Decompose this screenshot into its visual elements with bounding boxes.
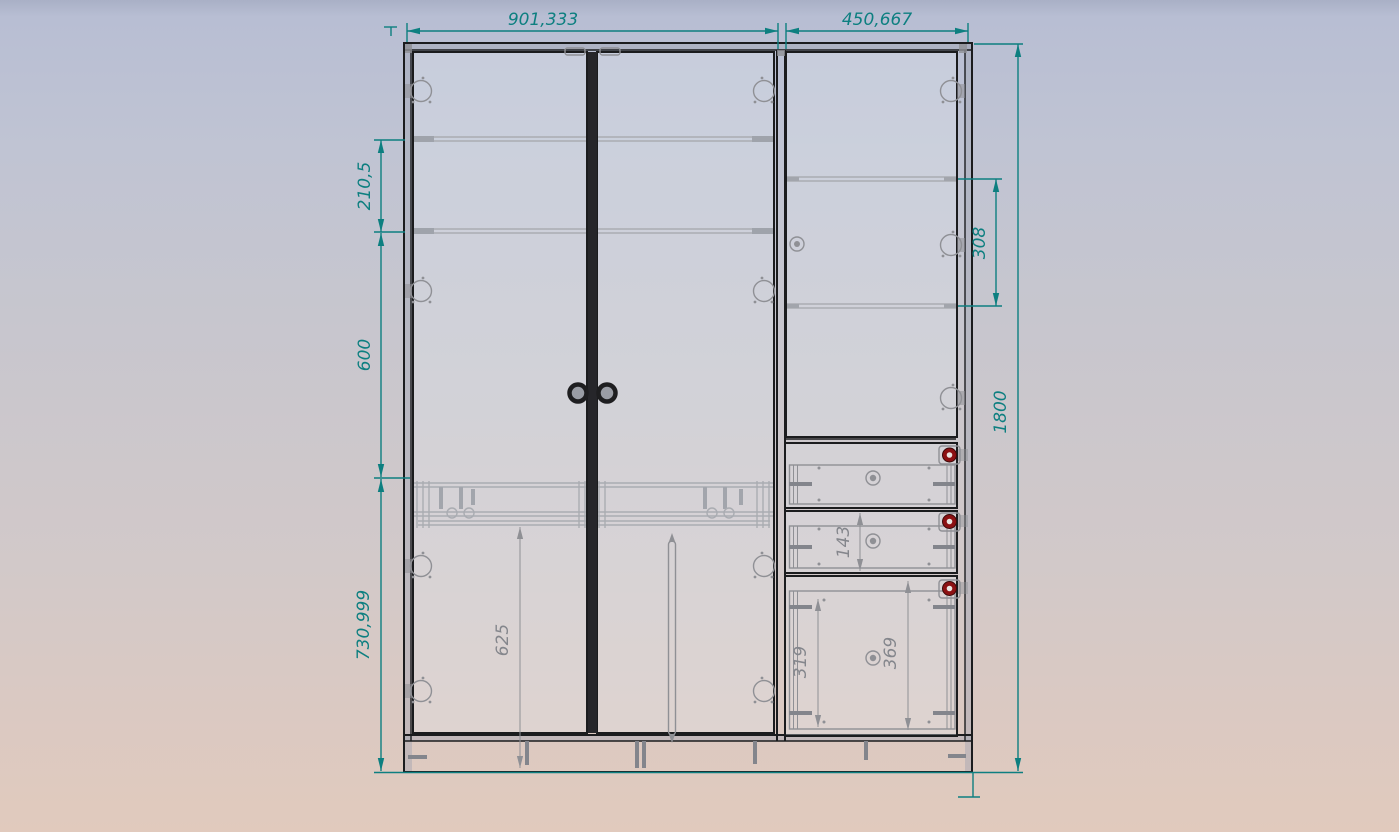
drawer-3-knob[interactable]	[943, 582, 957, 596]
svg-text:308: 308	[970, 227, 990, 260]
svg-text:730,999: 730,999	[354, 590, 374, 660]
plinth-feet	[408, 741, 966, 768]
door-knob-left[interactable]	[570, 385, 587, 402]
door-gap	[588, 52, 597, 733]
svg-text:1800: 1800	[991, 390, 1011, 433]
svg-text:600: 600	[355, 339, 375, 371]
svg-text:319: 319	[791, 646, 811, 678]
dim-middle-section-height[interactable]: 600	[355, 233, 410, 478]
svg-text:625: 625	[493, 624, 513, 656]
drawer-3[interactable]	[785, 576, 968, 736]
svg-text:450,667: 450,667	[842, 10, 912, 30]
svg-text:901,333: 901,333	[508, 10, 578, 30]
drawer-2-knob[interactable]	[943, 515, 957, 529]
svg-text:143: 143	[834, 526, 854, 558]
dim-upper-shelf-spacing[interactable]: 210,5	[355, 140, 405, 232]
door-knob-right[interactable]	[599, 385, 616, 402]
dim-lower-section-height[interactable]: 730,999	[354, 479, 384, 771]
drawer-2[interactable]	[785, 511, 968, 573]
right-door[interactable]	[786, 52, 957, 437]
left-door-right[interactable]	[597, 52, 774, 733]
cad-drawing-canvas[interactable]: 625 143 319 369 901,333 450,667	[0, 0, 1399, 832]
drawer-1[interactable]	[785, 443, 968, 508]
svg-text:210,5: 210,5	[355, 162, 375, 211]
drawer-1-knob[interactable]	[943, 448, 957, 462]
svg-text:369: 369	[881, 637, 901, 669]
